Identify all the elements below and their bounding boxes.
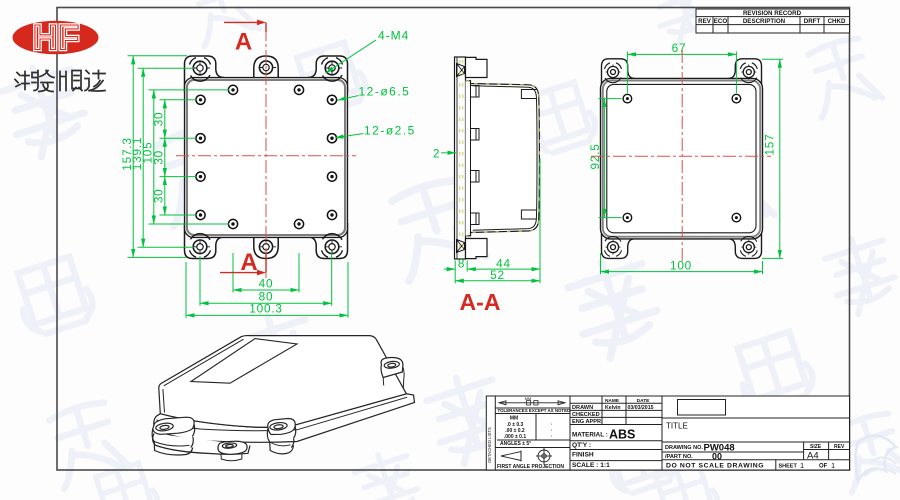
svg-text:DRFT: DRFT: [804, 18, 821, 25]
svg-text:30: 30: [152, 188, 166, 203]
svg-text:REVISION RECORD: REVISION RECORD: [743, 10, 802, 17]
svg-text:DESCRIPTION: DESCRIPTION: [743, 18, 786, 25]
svg-text:A: A: [240, 249, 257, 276]
svg-text:DRAWING NO.: DRAWING NO.: [665, 445, 703, 451]
svg-text:FIRST ANGLE PROJECTION: FIRST ANGLE PROJECTION: [497, 464, 564, 470]
svg-text:1: 1: [831, 461, 835, 470]
svg-text:4-M4: 4-M4: [378, 28, 409, 42]
svg-text:8: 8: [458, 256, 465, 270]
svg-text:Kelvin: Kelvin: [605, 405, 621, 411]
svg-text:HF: HF: [33, 19, 80, 58]
svg-text:100.3: 100.3: [249, 302, 283, 316]
svg-text:CHKD: CHKD: [828, 18, 846, 25]
svg-text:NAME: NAME: [605, 398, 620, 404]
svg-text:12-ø2.5: 12-ø2.5: [364, 123, 416, 137]
svg-text:ENG APPR: ENG APPR: [572, 419, 601, 425]
svg-text:DATE: DATE: [637, 398, 651, 404]
svg-text:DRAWN: DRAWN: [572, 405, 593, 411]
svg-text:67: 67: [672, 41, 687, 55]
svg-text:REV: REV: [698, 18, 712, 25]
svg-text:OF: OF: [819, 463, 828, 469]
svg-text:MM: MM: [510, 416, 518, 422]
svg-text:TOLERANCES EXCEPT AS NOTED: TOLERANCES EXCEPT AS NOTED: [498, 408, 571, 413]
svg-text:SCALE : 1:1: SCALE : 1:1: [572, 462, 610, 469]
svg-text:30: 30: [152, 150, 166, 165]
svg-text:MM: MM: [525, 396, 532, 401]
svg-text:A: A: [235, 29, 252, 56]
svg-text:157: 157: [762, 133, 776, 155]
svg-text:/PART NO.: /PART NO.: [665, 454, 693, 460]
svg-text:DETACHED LISTS: DETACHED LISTS: [487, 427, 492, 463]
svg-text:00: 00: [712, 451, 722, 461]
svg-text:.000 ± 0.1: .000 ± 0.1: [504, 434, 526, 440]
svg-text:12-ø6.5: 12-ø6.5: [359, 84, 411, 98]
svg-text:TITLE: TITLE: [666, 422, 688, 431]
svg-text:ABS: ABS: [609, 427, 635, 441]
svg-text:MATERIAL :: MATERIAL :: [572, 432, 608, 439]
svg-text:QT'Y :: QT'Y :: [572, 442, 591, 449]
svg-text:A-A: A-A: [460, 289, 501, 315]
svg-text:REV: REV: [834, 444, 845, 450]
svg-text:A4: A4: [807, 450, 819, 461]
svg-text:CHECKED: CHECKED: [572, 412, 600, 418]
svg-text:52: 52: [490, 268, 505, 282]
svg-text:40: 40: [259, 276, 274, 290]
svg-text:1: 1: [800, 461, 804, 470]
svg-text:FINISH: FINISH: [572, 452, 594, 459]
svg-text:03/03/2015: 03/03/2015: [628, 405, 654, 411]
svg-text:ECO: ECO: [714, 18, 728, 25]
svg-text:30: 30: [152, 112, 166, 127]
svg-text:ANGLES ± 5°: ANGLES ± 5°: [500, 441, 531, 447]
svg-text:SIZE: SIZE: [810, 444, 822, 450]
svg-text:SHEET: SHEET: [779, 463, 798, 469]
svg-text:2: 2: [433, 149, 439, 161]
svg-text:DO NOT SCALE DRAWING: DO NOT SCALE DRAWING: [666, 462, 764, 469]
svg-text:100: 100: [670, 258, 692, 272]
